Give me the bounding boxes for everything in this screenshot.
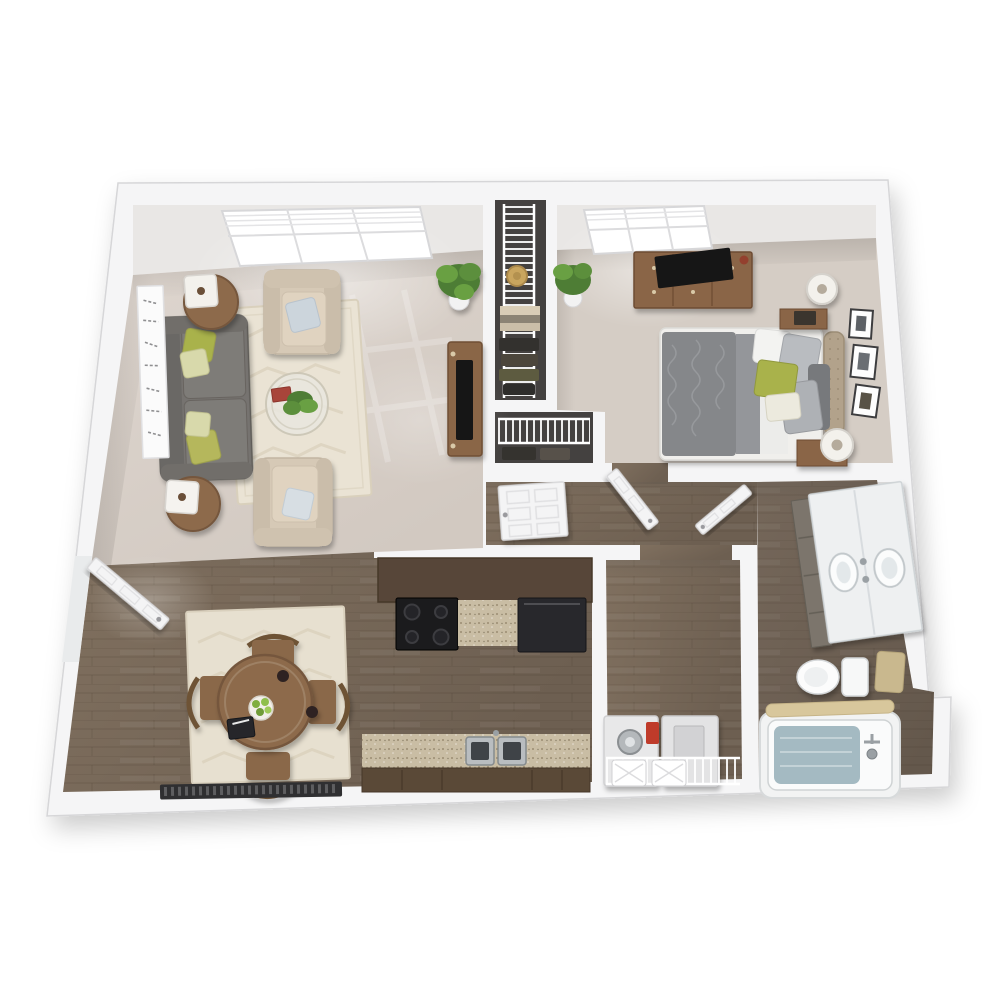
washer-lid-center xyxy=(625,737,635,747)
apple xyxy=(256,708,264,716)
toilet-tank xyxy=(842,658,868,696)
bedroom-window xyxy=(584,206,712,254)
nightstand-magazine xyxy=(794,311,816,325)
range-stove xyxy=(396,598,458,650)
dresser-vase xyxy=(740,256,749,265)
closet-hat-crown xyxy=(513,272,521,280)
toilet-seat xyxy=(804,667,828,687)
end-table-south xyxy=(165,477,220,531)
tub-mat xyxy=(774,726,860,784)
hanging-clothes xyxy=(540,448,570,460)
hanging-clothes xyxy=(499,369,539,381)
burner xyxy=(405,605,420,620)
granite-speckle xyxy=(458,600,520,646)
armchair-south xyxy=(254,458,332,546)
apple xyxy=(252,700,260,708)
closet-blankets xyxy=(500,306,540,331)
bed-pillow-cream xyxy=(765,392,802,421)
apple xyxy=(264,706,271,713)
table-cup xyxy=(306,706,318,718)
dryer-panel xyxy=(674,726,704,758)
armchair-back xyxy=(264,270,340,288)
kitchen-lower-run xyxy=(362,730,590,792)
lower-cabinets xyxy=(362,768,590,792)
wall-art xyxy=(137,286,169,459)
folded-blanket xyxy=(500,323,540,331)
hall-closet-door xyxy=(498,482,568,540)
refrigerator xyxy=(518,598,586,652)
laundry-top-shade xyxy=(606,560,740,578)
plant-foliage xyxy=(298,399,318,413)
floorplan-canvas xyxy=(0,0,1000,1000)
table-cup xyxy=(277,670,289,682)
picture-frame-art xyxy=(857,352,870,370)
plant-foliage xyxy=(553,264,573,280)
plant-foliage xyxy=(574,263,592,279)
living-tv-stand xyxy=(448,342,482,456)
hanging-clothes xyxy=(502,447,536,460)
lamp-finial xyxy=(197,287,205,295)
armchair-north xyxy=(264,270,340,354)
detergent-bottle xyxy=(646,722,659,744)
lamp-finial xyxy=(178,493,186,501)
living-room-window xyxy=(222,207,432,266)
kitchen-upper-run xyxy=(378,558,592,652)
art-canvas xyxy=(137,286,169,459)
hand-towel xyxy=(875,651,906,693)
armchair-back xyxy=(254,528,332,546)
armchair-pillow xyxy=(281,487,314,520)
hanging-clothes xyxy=(503,384,535,395)
sofa-pillow-cream xyxy=(179,348,209,378)
burner xyxy=(406,631,418,643)
plant-foliage xyxy=(459,263,481,281)
apple xyxy=(261,698,269,706)
plant-foliage xyxy=(436,265,458,283)
floorplan-svg xyxy=(0,0,1000,1000)
upper-cabinets xyxy=(378,558,592,602)
hanging-clothes xyxy=(499,338,539,351)
sofa-armrest xyxy=(160,461,253,481)
baseboard-heater xyxy=(160,781,342,799)
burner xyxy=(435,606,447,618)
sink-basin-interior xyxy=(503,742,521,760)
drum-lamp-center xyxy=(817,284,827,294)
dresser-knob xyxy=(691,290,695,294)
tv-stand-knob xyxy=(451,444,456,449)
table-notebook xyxy=(227,716,255,739)
laundry-wire-shelf xyxy=(606,758,740,786)
drum-lamp-center xyxy=(832,440,843,451)
end-table-north xyxy=(184,274,238,329)
armchair-pillow xyxy=(285,297,321,333)
sink-faucet xyxy=(493,730,499,736)
bedroom-dresser xyxy=(634,247,752,308)
vanity xyxy=(791,481,923,647)
television xyxy=(456,360,473,440)
hanging-clothes xyxy=(501,354,538,366)
coffee-table xyxy=(266,373,328,435)
plant-foliage xyxy=(283,401,301,415)
chair-seat xyxy=(246,752,290,780)
dresser-knob xyxy=(652,266,656,270)
laundry-doorway-floor xyxy=(640,545,732,561)
dresser-knob xyxy=(652,290,656,294)
folded-blanket xyxy=(500,315,540,323)
tv-stand-knob xyxy=(451,352,456,357)
burner xyxy=(434,630,449,645)
folded-blanket xyxy=(500,306,540,315)
tub-faucet xyxy=(867,749,877,759)
sofa-pillow-cream xyxy=(185,411,211,437)
picture-frame-art xyxy=(856,316,867,332)
sofa xyxy=(155,314,253,481)
plant-foliage xyxy=(454,284,474,300)
bathtub xyxy=(760,700,900,798)
picture-frame-art xyxy=(859,392,872,409)
sink-basin-interior xyxy=(471,742,489,760)
